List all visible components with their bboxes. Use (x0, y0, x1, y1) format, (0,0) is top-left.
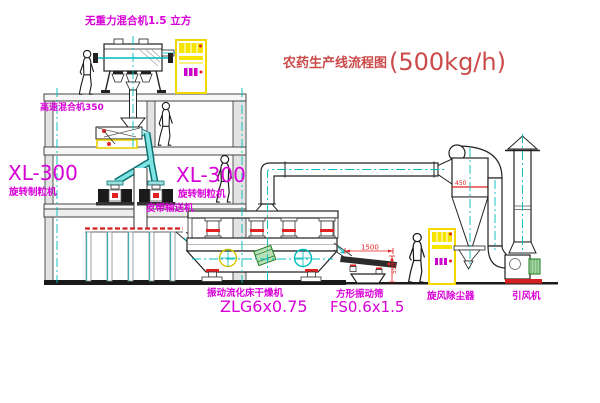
diagram-title-capacity: (500kg/h) (389, 48, 506, 76)
label-granulator-left-model: XL-300 (8, 161, 78, 185)
control-cabinet-right (429, 229, 455, 284)
control-cabinet-top (176, 40, 206, 93)
label-dryer-model: ZLG6x0.75 (220, 297, 308, 316)
diagram-svg: 无重力混合机1.5 立方 高速混合机350 XL-300 旋转制粒机 XL-30… (0, 0, 600, 403)
mixer-discharge-valves (112, 71, 152, 82)
flow-diagram-canvas: 无重力混合机1.5 立方 高速混合机350 XL-300 旋转制粒机 XL-30… (0, 0, 600, 403)
label-sieve-model: FS0.6x1.5 (330, 298, 404, 316)
label-granulator-left-name: 旋转制粒机 (8, 186, 57, 198)
dimension-sieve-height: 550 (391, 262, 398, 274)
induced-draft-fan (505, 255, 542, 284)
dimension-sieve-length: 1500 (361, 244, 379, 252)
fan-base (505, 279, 542, 284)
label-fan: 引风机 (512, 290, 541, 302)
label-granulator-right-model: XL-300 (176, 163, 246, 187)
fan-motor (529, 259, 540, 274)
label-granulator-right-name: 旋转制粒机 (177, 188, 226, 200)
label-belt-conveyor: 皮带输送机 (145, 202, 194, 214)
diagram-title: 农药生产线流程图 (282, 55, 387, 71)
label-high-speed-mixer: 高速混合机350 (40, 101, 104, 113)
label-cyclone: 旋风除尘器 (426, 290, 475, 302)
label-gravity-mixer: 无重力混合机1.5 立方 (84, 14, 192, 27)
dimension-cyclone: 450 (455, 180, 467, 187)
